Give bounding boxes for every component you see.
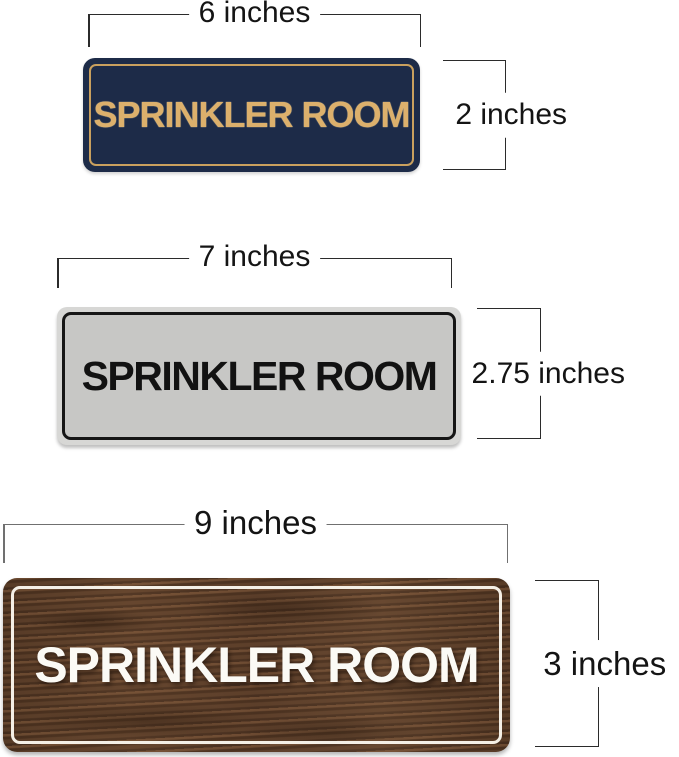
width-dimension-6in-label: 6 inches bbox=[189, 0, 321, 31]
width-dimension-6in: 6 inches bbox=[88, 14, 421, 15]
width-dimension-7in: 7 inches bbox=[57, 258, 452, 259]
sign-walnut-9x3: SPRINKLER ROOM bbox=[3, 578, 510, 752]
product-size-diagram: 6 inches SPRINKLER ROOM 2 inches 7 inche… bbox=[0, 0, 679, 757]
width-dimension-9in-label: 9 inches bbox=[184, 504, 327, 542]
height-dimension-3in-label: 3 inches bbox=[537, 640, 672, 688]
height-dimension-2in-label: 2 inches bbox=[449, 93, 573, 138]
sign-navy-text: SPRINKLER ROOM bbox=[93, 94, 409, 136]
sign-silver-text: SPRINKLER ROOM bbox=[82, 353, 437, 400]
width-dimension-7in-label: 7 inches bbox=[189, 240, 321, 275]
sign-navy-6x2: SPRINKLER ROOM bbox=[83, 58, 420, 172]
height-dimension-275in: 2.75 inches bbox=[477, 308, 541, 439]
width-dimension-9in: 9 inches bbox=[3, 524, 508, 525]
height-dimension-2in: 2 inches bbox=[443, 60, 506, 170]
height-dimension-275in-label: 2.75 inches bbox=[466, 351, 631, 396]
sign-silver-7x275: SPRINKLER ROOM bbox=[57, 307, 461, 445]
height-dimension-3in: 3 inches bbox=[535, 580, 599, 747]
sign-walnut-text: SPRINKLER ROOM bbox=[34, 636, 478, 694]
